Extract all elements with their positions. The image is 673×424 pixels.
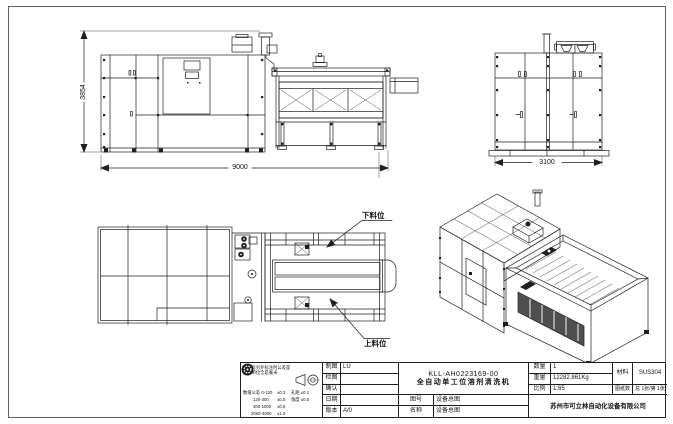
side-view	[489, 34, 609, 166]
version-label: 版本	[323, 406, 341, 417]
tolerance-row: 数值公差 0-120	[243, 390, 272, 395]
name-label: 名称	[399, 406, 434, 417]
tolerance-row: 2000-4000	[251, 411, 272, 416]
drawn-value: LU	[341, 363, 399, 374]
product-name: 全自动单工位溶剂清洗机	[417, 379, 511, 386]
drawn-label: 制图	[323, 363, 341, 374]
dimension-front-length: 9000	[231, 164, 249, 172]
quantity-label: 数量	[529, 363, 551, 374]
sheets-value: 总 1张/第 1张	[633, 385, 667, 396]
roof-box	[232, 37, 252, 52]
date-value	[341, 395, 399, 406]
checked-label: 检图	[323, 374, 341, 385]
projection-symbol-icon	[295, 373, 321, 389]
plan-view	[98, 221, 396, 339]
quantity-value: 1	[551, 363, 613, 374]
approved-value	[341, 385, 399, 396]
tolerance-row: 400-1000	[253, 404, 271, 409]
tolerance-row: 孔距 ±0.1	[291, 390, 309, 395]
weight-label: 重量	[529, 374, 551, 385]
isometric-view	[439, 190, 649, 365]
tolerance-row: 120-400	[253, 397, 269, 402]
drawing-title-cell: KLL-AH0223169-00 全自动单工位溶剂清洗机	[399, 363, 529, 395]
dimension-side-width: 3100	[538, 159, 556, 167]
figure-number-value: 设备总图	[434, 395, 529, 406]
tolerance-row: ±1.0	[277, 411, 285, 416]
sheets-label: 图纸数	[613, 385, 633, 396]
engineering-drawing-page: 3854 9000 3100 下料位 上料位 在没有另外标注时公差是 尺寸单位全…	[0, 0, 673, 424]
tolerance-row: ±0.5	[277, 397, 285, 402]
name-value: 设备总图	[434, 406, 529, 417]
label-load-position: 上料位	[364, 339, 387, 348]
scale-label: 比例	[529, 385, 551, 396]
figure-number-label: 图号	[399, 395, 434, 406]
material-label: 材料	[613, 363, 633, 385]
dimension-front-height: 3854	[80, 83, 88, 101]
weight-value: 12282.861Kg	[551, 374, 613, 385]
version-value: A/0	[341, 406, 399, 417]
label-unload-position: 下料位	[362, 211, 385, 220]
title-block: 在没有另外标注时公差是 尺寸单位全是毫米 数值公差 0-120 ±0.3 孔距 …	[240, 362, 666, 418]
material-value: SUS304	[633, 363, 667, 385]
company-cell: 苏州市可立林自动化设备有限公司	[529, 395, 667, 417]
approved-label: 确认	[323, 385, 341, 396]
tolerance-row: 角度 ±0.5	[291, 397, 309, 402]
checked-value	[341, 374, 399, 385]
front-view	[80, 31, 418, 178]
tolerance-row: ±0.8	[277, 404, 285, 409]
tolerance-row: ±0.3	[277, 390, 285, 395]
drawing-code: KLL-AH0223169-00	[429, 371, 499, 378]
scale-value: 1:65	[551, 385, 613, 396]
company-name: 苏州市可立林自动化设备有限公司	[550, 403, 646, 410]
drawing-canvas	[0, 0, 673, 424]
date-label: 日期	[323, 395, 341, 406]
